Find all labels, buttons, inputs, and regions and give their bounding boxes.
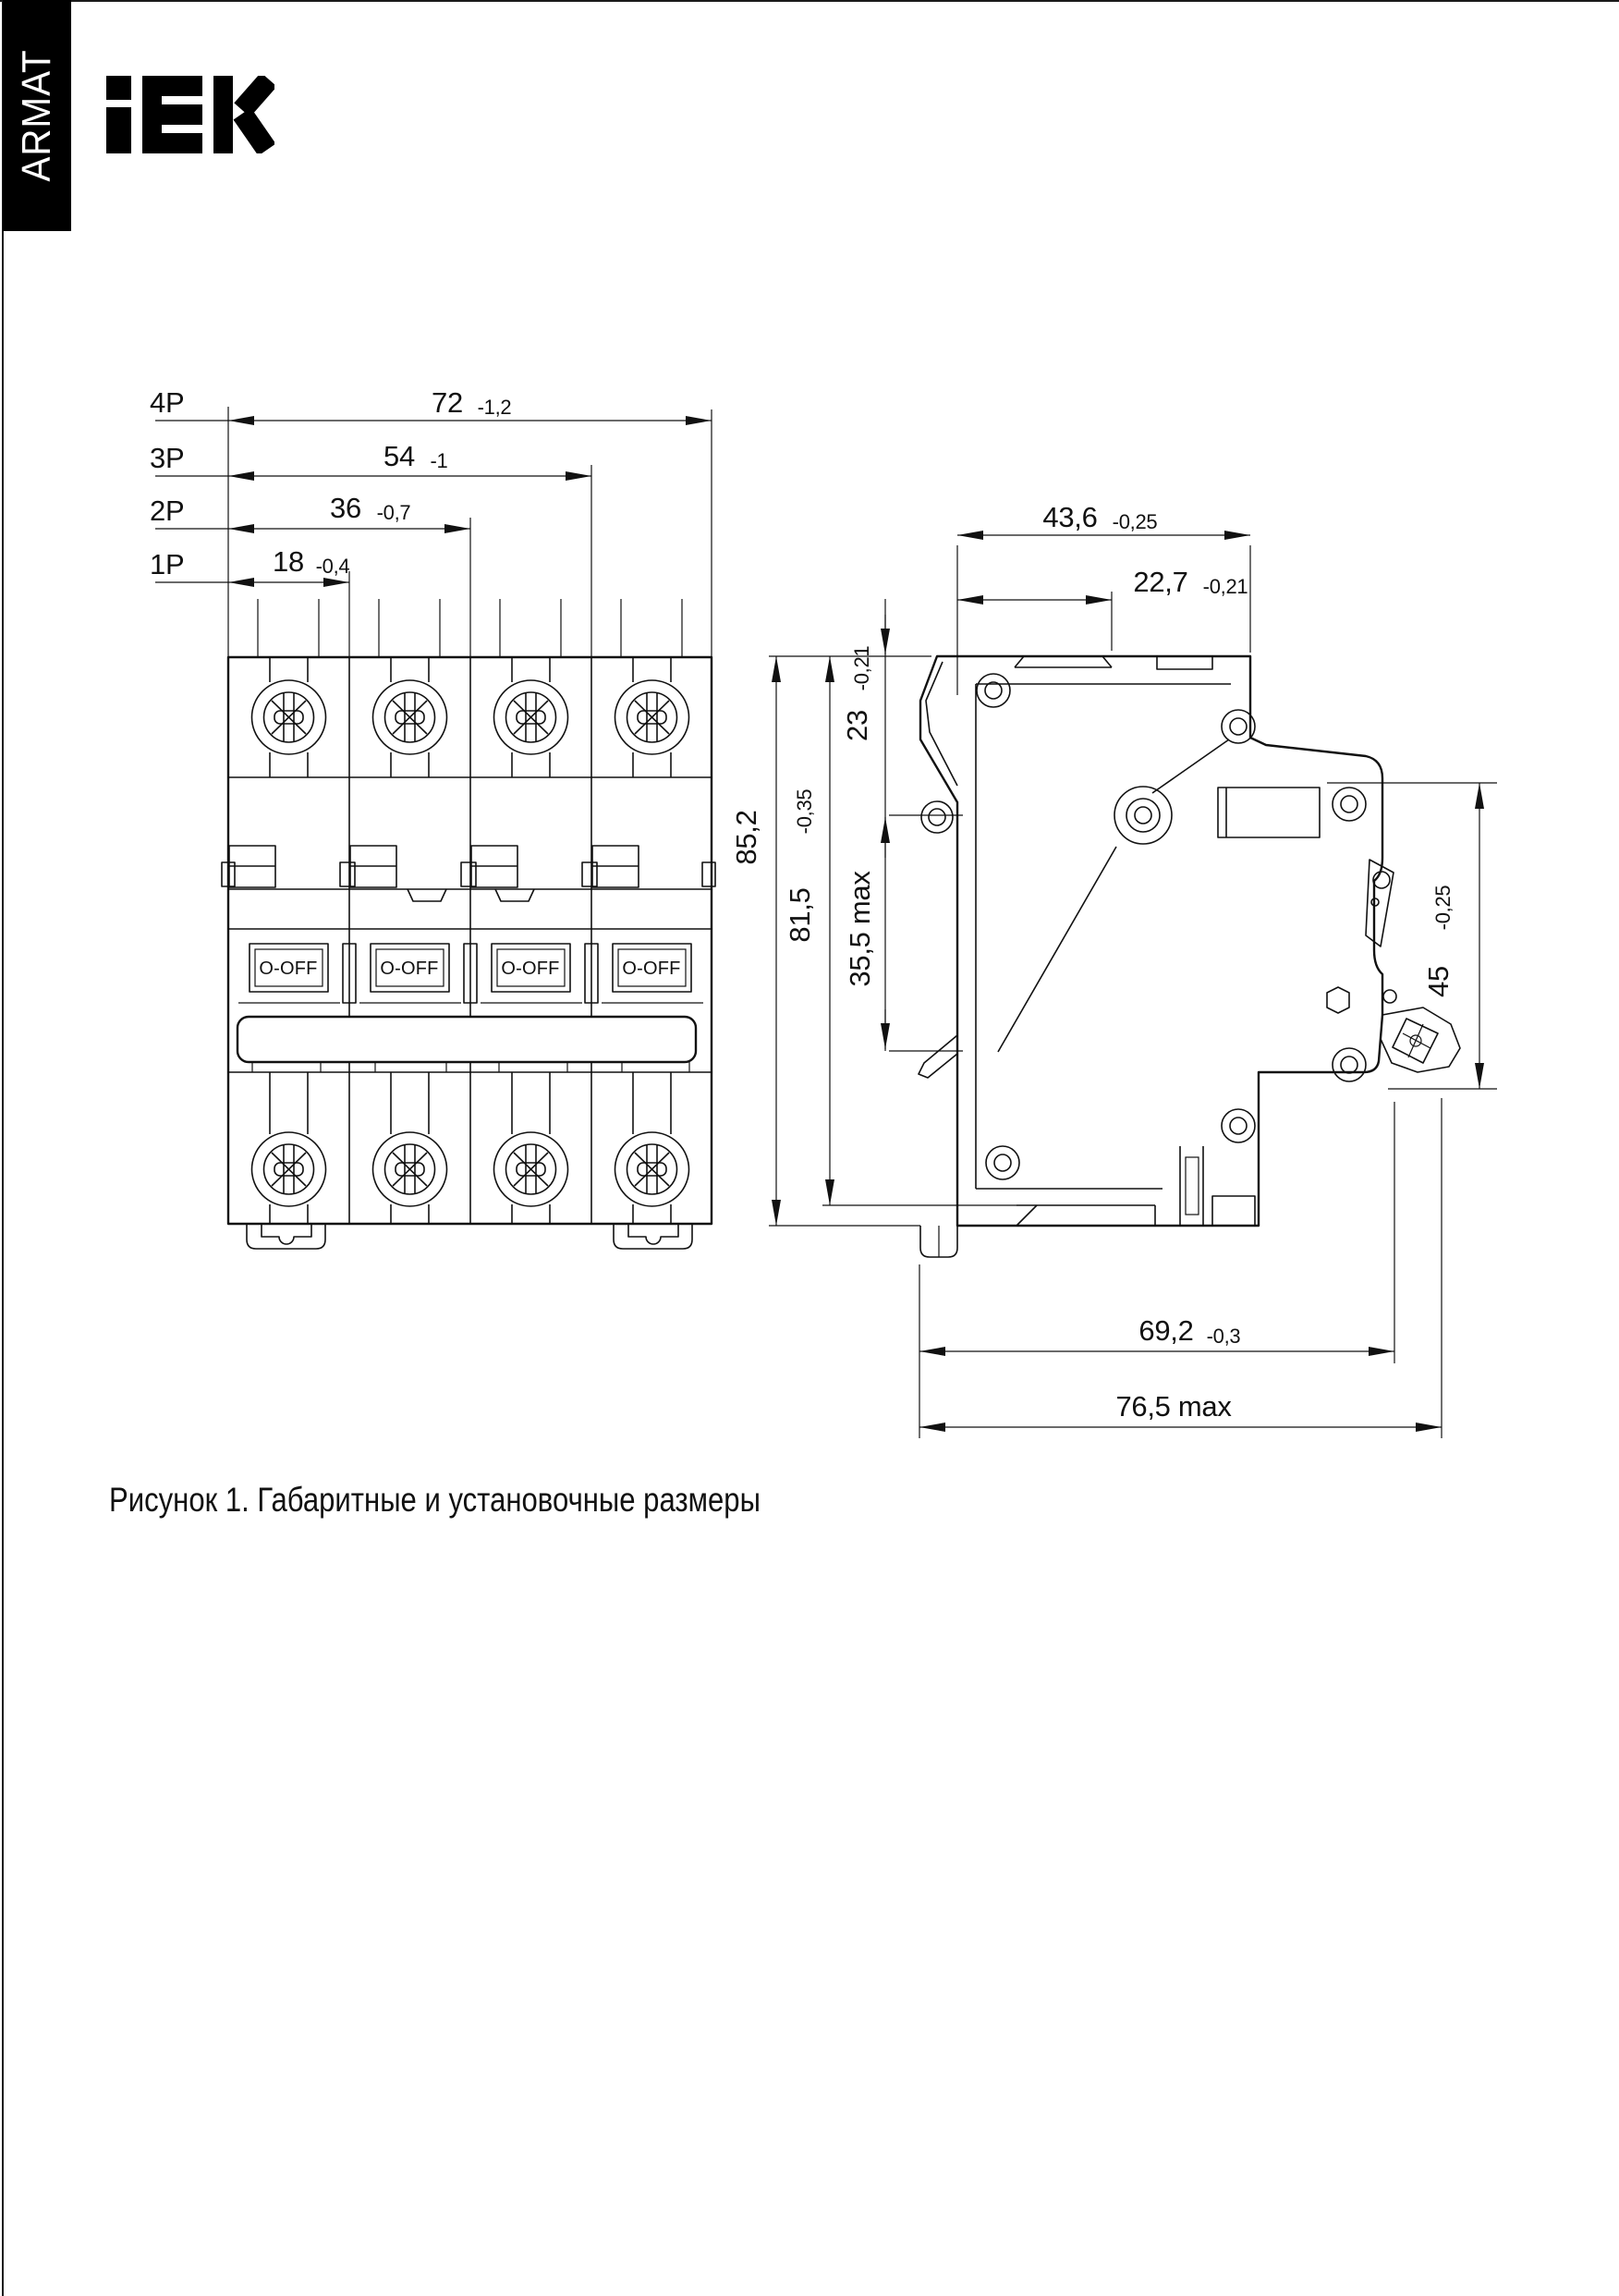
dim-depth-tolerance: -0,3 — [1207, 1325, 1241, 1348]
toggle-label-pole3: O-OFF — [501, 959, 559, 979]
dim-3p-tolerance: -1 — [431, 449, 448, 472]
side-view — [919, 656, 1460, 1257]
dim-1p-tolerance: -0,4 — [316, 555, 350, 578]
dim-handle-top-tolerance: -0,21 — [850, 646, 873, 691]
dim-2p-value: 36 — [330, 492, 361, 524]
pole-label-4p: 4P — [150, 386, 184, 419]
dim-handle-top-value: 23 — [841, 710, 873, 741]
dim-depth-value: 69,2 — [1138, 1314, 1193, 1347]
figure-caption: Рисунок 1. Габаритные и установочные раз… — [109, 1481, 761, 1520]
dim-din-rail-tolerance: -0,25 — [1431, 885, 1455, 931]
pole-label-1p: 1P — [150, 548, 184, 580]
dimension-drawing: 4P 72 -1,2 3P 54 -1 2P 36 -0,7 1P 18 -0,… — [0, 0, 1619, 2296]
side-interior — [976, 684, 1320, 1189]
side-view-dimensions: 43,6 -0,25 22,7 -0,21 23 -0,21 35,5 max … — [730, 501, 1497, 1438]
handle-tie-bar — [237, 1017, 696, 1062]
dim-handle-offset-tolerance: -0,21 — [1203, 575, 1248, 598]
pole-label-2p: 2P — [150, 495, 184, 527]
dim-4p-tolerance: -1,2 — [478, 396, 512, 419]
toggle-lever — [919, 662, 957, 1078]
dim-handle-offset-value: 22,7 — [1133, 566, 1187, 598]
toggle-label-pole2: O-OFF — [380, 959, 438, 979]
front-view-dimensions: 4P 72 -1,2 3P 54 -1 2P 36 -0,7 1P 18 -0,… — [150, 386, 712, 657]
dim-depth-max: 76,5 max — [1115, 1390, 1232, 1423]
toggle-label-pole1: O-OFF — [259, 959, 317, 979]
dim-body-height-tolerance: -0,35 — [793, 789, 816, 835]
dim-overall-height: 85,2 — [730, 810, 762, 864]
side-body-outline — [920, 656, 1382, 1226]
dim-body-height-value: 81,5 — [784, 887, 816, 942]
dim-3p-value: 54 — [383, 440, 415, 472]
front-mid-details — [222, 846, 715, 887]
dim-2p-tolerance: -0,7 — [377, 501, 411, 524]
front-view: O-OFF O-OFF O-OFF O-OFF — [222, 599, 715, 1249]
dim-1p-value: 18 — [273, 545, 304, 578]
dim-din-rail-value: 45 — [1422, 966, 1455, 997]
din-feet — [247, 1224, 692, 1249]
dim-width-value: 43,6 — [1042, 501, 1097, 533]
datasheet-page: ARMAT 4P 72 -1,2 — [0, 0, 1619, 2296]
dim-4p-value: 72 — [432, 386, 463, 419]
dim-handle-travel: 35,5 max — [844, 871, 876, 987]
toggle-label-pole4: O-OFF — [622, 959, 680, 979]
dim-width-tolerance: -0,25 — [1113, 510, 1158, 533]
pole-label-3p: 3P — [150, 442, 184, 474]
